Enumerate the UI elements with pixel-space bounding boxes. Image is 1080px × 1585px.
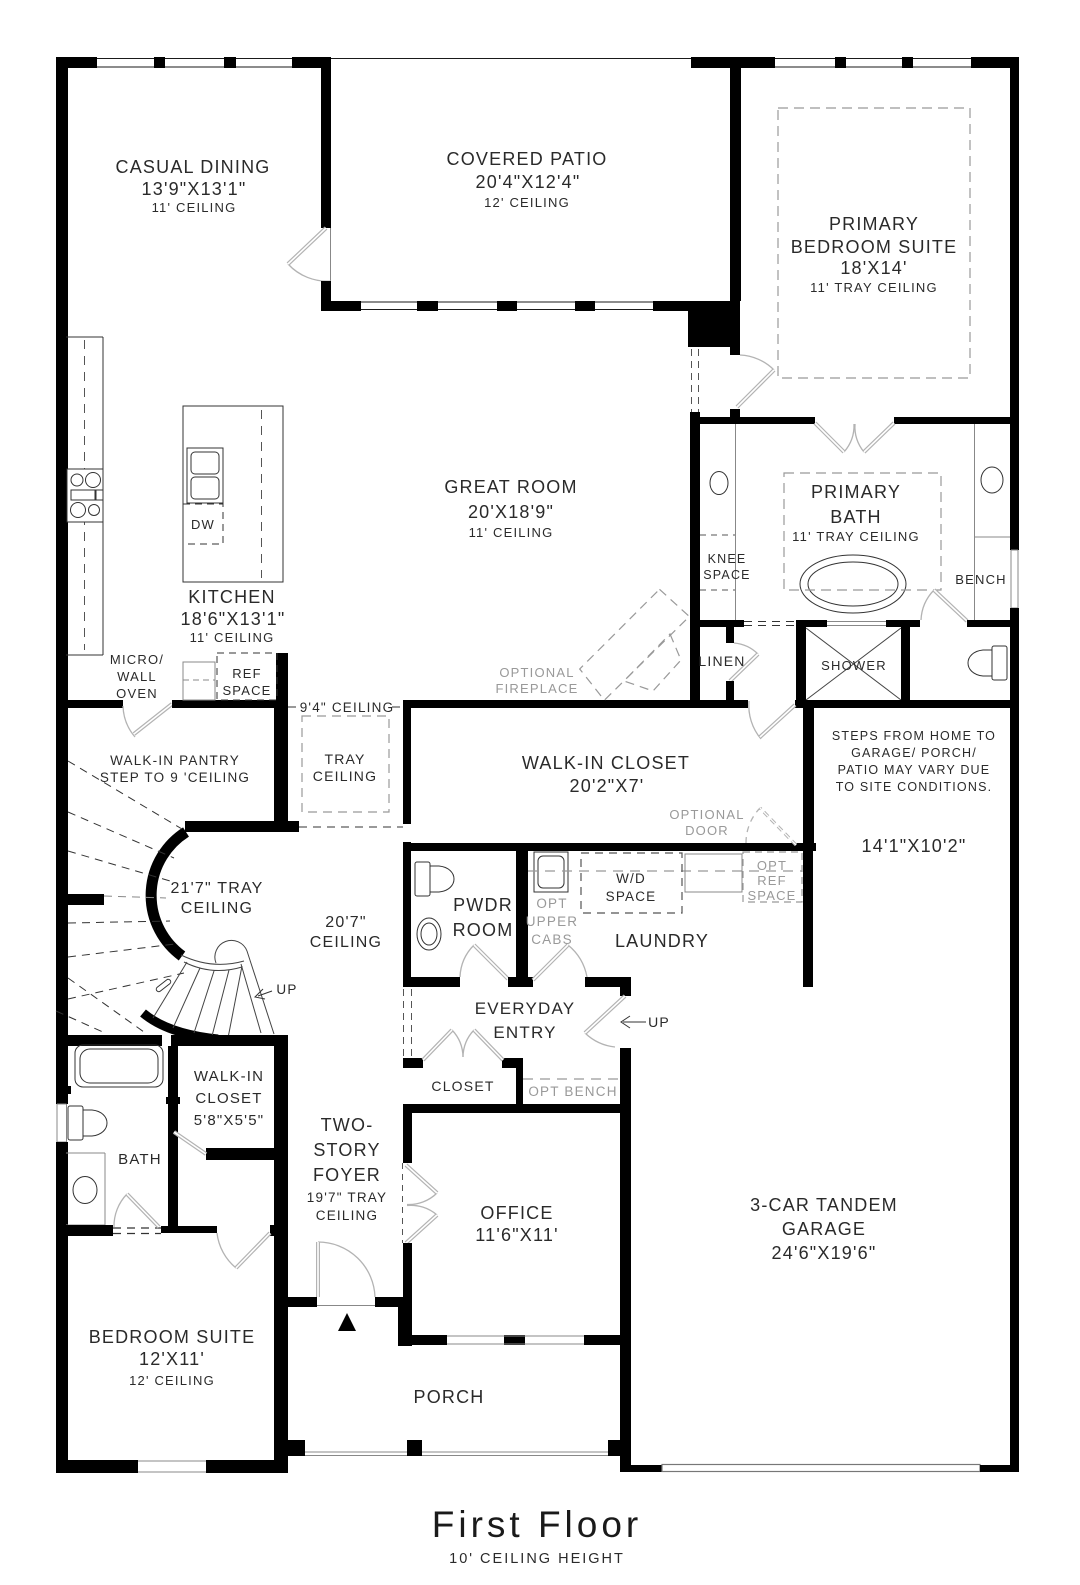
svg-text:STEP TO 9 'CEILING: STEP TO 9 'CEILING [100, 770, 250, 785]
svg-text:DW: DW [191, 517, 215, 532]
svg-text:11' CEILING: 11' CEILING [190, 630, 275, 645]
svg-text:LAUNDRY: LAUNDRY [615, 931, 709, 951]
svg-text:3-CAR TANDEM: 3-CAR TANDEM [750, 1195, 898, 1215]
svg-text:PRIMARY: PRIMARY [829, 214, 919, 234]
svg-text:BEDROOM SUITE: BEDROOM SUITE [791, 237, 958, 257]
svg-text:ENTRY: ENTRY [493, 1023, 556, 1042]
svg-text:OVEN: OVEN [116, 686, 158, 701]
svg-text:PORCH: PORCH [413, 1387, 484, 1407]
svg-text:BEDROOM SUITE: BEDROOM SUITE [89, 1327, 256, 1347]
svg-text:KNEE: KNEE [708, 552, 747, 566]
svg-text:GARAGE: GARAGE [782, 1219, 866, 1239]
svg-text:REF: REF [232, 666, 262, 681]
svg-text:First Floor: First Floor [432, 1504, 643, 1545]
svg-text:MICRO/: MICRO/ [110, 652, 164, 667]
svg-text:CEILING: CEILING [316, 1208, 378, 1223]
svg-text:CEILING: CEILING [181, 900, 253, 917]
svg-text:OPTIONAL: OPTIONAL [669, 807, 744, 822]
svg-text:GREAT ROOM: GREAT ROOM [444, 477, 577, 497]
svg-text:20'7": 20'7" [325, 914, 366, 931]
svg-text:11' TRAY CEILING: 11' TRAY CEILING [810, 280, 938, 295]
svg-text:SHOWER: SHOWER [821, 658, 887, 673]
svg-text:KITCHEN: KITCHEN [188, 587, 275, 607]
svg-text:W/D: W/D [616, 871, 646, 886]
svg-text:ROOM: ROOM [453, 920, 514, 940]
svg-text:BENCH: BENCH [955, 572, 1007, 587]
svg-text:OFFICE: OFFICE [480, 1203, 553, 1223]
svg-text:14'1"X10'2": 14'1"X10'2" [862, 836, 967, 856]
svg-text:11' CEILING: 11' CEILING [469, 525, 554, 540]
svg-text:BATH: BATH [118, 1151, 162, 1168]
svg-text:CEILING: CEILING [310, 934, 382, 951]
svg-text:PATIO MAY VARY DUE: PATIO MAY VARY DUE [838, 763, 991, 777]
svg-text:WALK-IN CLOSET: WALK-IN CLOSET [522, 753, 690, 773]
svg-text:DOOR: DOOR [685, 823, 729, 838]
svg-text:CEILING: CEILING [313, 768, 377, 784]
svg-text:TWO-: TWO- [321, 1115, 374, 1135]
svg-text:10' CEILING HEIGHT: 10' CEILING HEIGHT [449, 1551, 625, 1567]
svg-text:STORY: STORY [313, 1140, 380, 1160]
svg-text:UP: UP [648, 1014, 670, 1030]
svg-text:CLOSET: CLOSET [195, 1090, 262, 1107]
svg-text:18'6"X13'1": 18'6"X13'1" [181, 609, 286, 629]
svg-text:11' CEILING: 11' CEILING [152, 200, 237, 215]
svg-text:UP: UP [276, 982, 297, 997]
svg-text:GARAGE/ PORCH/: GARAGE/ PORCH/ [851, 746, 977, 760]
svg-text:UPPER: UPPER [526, 914, 579, 929]
svg-text:12' CEILING: 12' CEILING [129, 1373, 215, 1388]
svg-text:12'X11': 12'X11' [139, 1349, 205, 1369]
svg-text:13'9"X13'1": 13'9"X13'1" [142, 179, 247, 199]
svg-text:SPACE: SPACE [222, 683, 271, 698]
svg-text:11' TRAY CEILING: 11' TRAY CEILING [792, 529, 920, 544]
svg-text:20'4"X12'4": 20'4"X12'4" [476, 172, 581, 192]
svg-text:18'X14': 18'X14' [840, 258, 907, 278]
svg-text:COVERED PATIO: COVERED PATIO [447, 149, 608, 169]
svg-text:LINEN: LINEN [698, 653, 745, 669]
svg-text:FIREPLACE: FIREPLACE [495, 681, 578, 696]
svg-text:21'7" TRAY: 21'7" TRAY [170, 880, 263, 897]
svg-text:TO SITE CONDITIONS.: TO SITE CONDITIONS. [836, 780, 993, 794]
svg-text:OPT: OPT [536, 896, 567, 911]
svg-text:24'6"X19'6": 24'6"X19'6" [772, 1243, 877, 1263]
svg-text:WALK-IN: WALK-IN [194, 1068, 264, 1085]
svg-text:OPTIONAL: OPTIONAL [499, 665, 574, 680]
svg-text:PRIMARY: PRIMARY [811, 482, 901, 502]
svg-text:REF: REF [757, 873, 787, 888]
svg-text:CLOSET: CLOSET [431, 1078, 494, 1094]
svg-text:PWDR: PWDR [453, 895, 513, 915]
svg-text:12' CEILING: 12' CEILING [484, 195, 570, 210]
svg-text:CASUAL DINING: CASUAL DINING [116, 157, 271, 177]
svg-text:BATH: BATH [830, 507, 881, 527]
svg-text:19'7" TRAY: 19'7" TRAY [307, 1190, 387, 1205]
svg-text:SPACE: SPACE [703, 568, 750, 582]
svg-text:OPT: OPT [757, 858, 787, 873]
svg-text:EVERYDAY: EVERYDAY [475, 999, 576, 1018]
svg-text:9'4" CEILING: 9'4" CEILING [300, 700, 395, 715]
svg-text:TRAY: TRAY [324, 751, 365, 767]
svg-text:SPACE: SPACE [606, 889, 657, 904]
svg-text:5'8"X5'5": 5'8"X5'5" [194, 1112, 265, 1129]
svg-text:11'6"X11': 11'6"X11' [475, 1225, 558, 1245]
svg-text:WALK-IN PANTRY: WALK-IN PANTRY [110, 753, 240, 768]
svg-text:FOYER: FOYER [313, 1165, 381, 1185]
svg-text:STEPS FROM HOME TO: STEPS FROM HOME TO [832, 729, 996, 743]
svg-text:CABS: CABS [531, 932, 573, 947]
svg-text:OPT BENCH: OPT BENCH [528, 1084, 617, 1099]
svg-text:20'X18'9": 20'X18'9" [468, 502, 554, 522]
svg-text:20'2"X7': 20'2"X7' [570, 776, 645, 796]
svg-text:WALL: WALL [117, 669, 157, 684]
svg-text:SPACE: SPACE [747, 888, 796, 903]
